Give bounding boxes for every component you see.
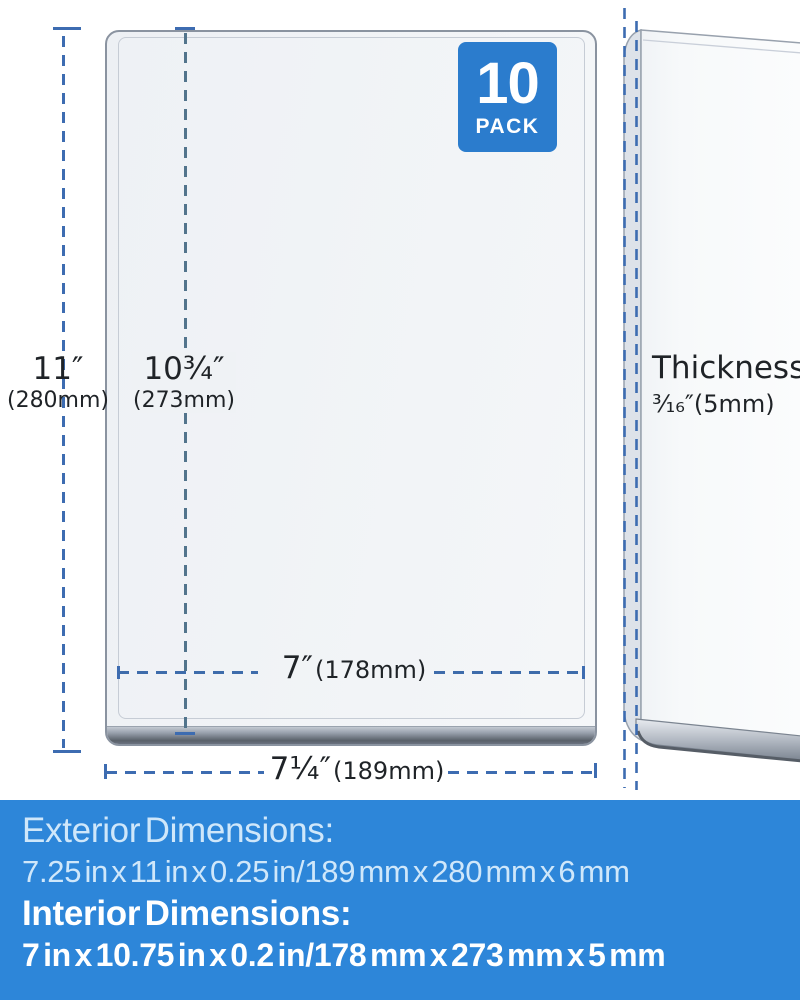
width-exterior-value: 7¼″ <box>270 752 331 788</box>
height-exterior-bottom-cap <box>53 750 81 753</box>
height-interior-metric: (273mm) <box>132 388 236 413</box>
thickness-label: Thickness ³⁄₁₆″(5mm) <box>652 350 800 419</box>
interior-dimensions-value: 7 in x 10.75 in x 0.2 in/178 mm x 273 mm… <box>22 935 800 976</box>
interior-dimensions-title: Interior Dimensions: <box>22 892 800 935</box>
width-exterior-right-tick <box>594 763 597 778</box>
width-interior-label: 7″ (178mm) <box>266 651 442 687</box>
product-dimension-diagram: 10 PACK 11″ (280mm) 10¾″ (273mm) 7″ (178… <box>0 0 800 1000</box>
sleeve-bottom-opening <box>107 726 595 744</box>
width-interior-dimension-line-left <box>118 671 258 674</box>
side-panel-edge-face <box>624 30 641 740</box>
width-exterior-dimension-line-right <box>448 771 595 774</box>
dimensions-banner: Exterior Dimensions: 7.25 in x 11 in x 0… <box>0 800 800 1000</box>
thickness-value: ³⁄₁₆″(5mm) <box>652 390 800 419</box>
width-exterior-label: 7¼″ (189mm) <box>262 752 452 788</box>
thickness-title: Thickness <box>652 350 800 387</box>
height-interior-label: 10¾″ (273mm) <box>132 352 236 413</box>
height-interior-top-cap <box>175 27 195 30</box>
height-exterior-metric: (280mm) <box>6 388 110 413</box>
width-interior-right-tick <box>582 666 585 679</box>
exterior-dimensions-value: 7.25 in x 11 in x 0.25 in/189 mm x 280 m… <box>22 852 800 892</box>
height-interior-bottom-cap <box>175 732 195 735</box>
width-exterior-metric: (189mm) <box>333 758 444 786</box>
pack-count-badge: 10 PACK <box>458 42 557 152</box>
width-interior-metric: (178mm) <box>315 657 426 685</box>
width-exterior-dimension-line-left <box>106 771 264 774</box>
pack-count: 10 <box>476 55 539 113</box>
height-exterior-label: 11″ (280mm) <box>6 352 110 413</box>
height-exterior-value: 11″ <box>6 352 110 388</box>
height-exterior-top-cap <box>53 27 81 30</box>
width-interior-dimension-line-right <box>434 671 584 674</box>
pack-label: PACK <box>476 115 540 139</box>
width-interior-value: 7″ <box>282 651 313 687</box>
exterior-dimensions-title: Exterior Dimensions: <box>22 810 800 852</box>
height-interior-value: 10¾″ <box>132 352 236 388</box>
